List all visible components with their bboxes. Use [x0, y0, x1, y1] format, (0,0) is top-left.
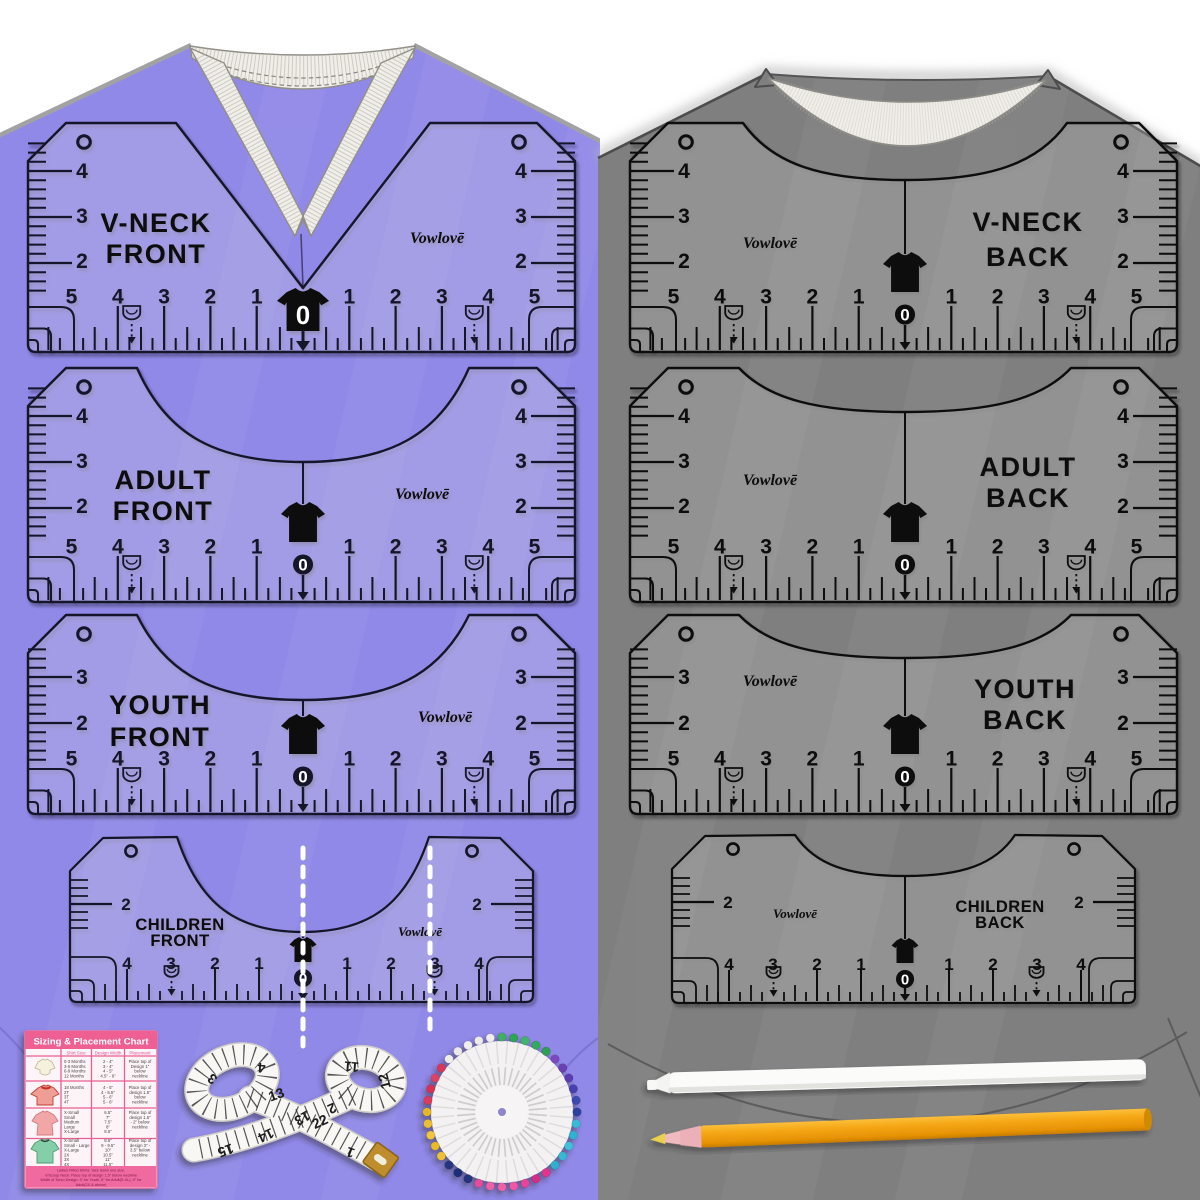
- svg-text:2: 2: [678, 250, 690, 273]
- svg-text:2: 2: [1117, 250, 1129, 273]
- svg-text:3: 3: [76, 450, 88, 473]
- svg-text:2: 2: [1074, 893, 1083, 912]
- svg-text:1: 1: [251, 748, 263, 771]
- svg-text:2: 2: [807, 748, 819, 771]
- svg-text:FRONT: FRONT: [106, 239, 206, 269]
- svg-text:3: 3: [158, 286, 170, 309]
- svg-text:X-Large: X-Large: [64, 1129, 80, 1134]
- svg-text:2: 2: [515, 495, 527, 518]
- svg-text:4: 4: [515, 405, 527, 428]
- svg-text:2: 2: [121, 895, 130, 914]
- svg-text:Vowlovē: Vowlovē: [773, 906, 817, 921]
- svg-text:1: 1: [343, 286, 355, 309]
- svg-text:3: 3: [678, 450, 690, 473]
- svg-text:4: 4: [1117, 405, 1129, 428]
- svg-text:3: 3: [1117, 666, 1129, 689]
- svg-text:3: 3: [760, 536, 772, 559]
- svg-text:4: 4: [76, 160, 88, 183]
- svg-text:5: 5: [66, 748, 78, 771]
- svg-text:3: 3: [760, 286, 772, 309]
- svg-text:1: 1: [945, 286, 957, 309]
- svg-text:0: 0: [900, 768, 909, 787]
- svg-text:1: 1: [853, 536, 865, 559]
- svg-text:YOUTH: YOUTH: [109, 690, 211, 720]
- svg-text:4: 4: [724, 955, 734, 974]
- svg-text:2: 2: [807, 536, 819, 559]
- svg-text:0: 0: [900, 556, 909, 575]
- svg-text:2: 2: [1117, 712, 1129, 735]
- svg-text:4.5" - 6": 4.5" - 6": [100, 1073, 116, 1078]
- svg-text:0: 0: [296, 300, 310, 330]
- svg-text:2: 2: [205, 536, 217, 559]
- svg-text:4T: 4T: [64, 1099, 69, 1104]
- svg-text:5: 5: [66, 536, 78, 559]
- svg-text:YOUTH: YOUTH: [974, 674, 1076, 704]
- svg-text:BACK: BACK: [986, 483, 1070, 513]
- svg-text:2: 2: [390, 748, 402, 771]
- svg-text:Vowlovē: Vowlovē: [410, 230, 465, 247]
- svg-text:2: 2: [992, 286, 1004, 309]
- svg-text:2: 2: [472, 895, 481, 914]
- svg-text:3: 3: [515, 666, 527, 689]
- svg-text:5: 5: [1131, 536, 1143, 559]
- svg-text:3: 3: [158, 536, 170, 559]
- svg-text:1: 1: [342, 954, 351, 973]
- svg-text:1: 1: [254, 954, 263, 973]
- svg-text:5: 5: [668, 748, 680, 771]
- svg-text:Ladies Fitted Shirts: Size dow: Ladies Fitted Shirts: Size down one size…: [57, 1169, 125, 1173]
- svg-text:3: 3: [1038, 536, 1050, 559]
- svg-text:0: 0: [901, 972, 909, 989]
- svg-text:neckline: neckline: [132, 1099, 148, 1104]
- svg-text:5: 5: [529, 536, 541, 559]
- svg-text:Vowlovē: Vowlovē: [743, 472, 798, 489]
- svg-text:3: 3: [1038, 286, 1050, 309]
- svg-text:V/Scoop Neck: Place top of des: V/Scoop Neck: Place top of design 1.5" b…: [45, 1173, 137, 1177]
- svg-text:2: 2: [678, 712, 690, 735]
- svg-text:4: 4: [474, 954, 484, 973]
- svg-text:3: 3: [76, 205, 88, 228]
- svg-text:4: 4: [122, 954, 132, 973]
- svg-text:4: 4: [678, 160, 690, 183]
- svg-text:FRONT: FRONT: [113, 496, 213, 526]
- svg-text:2: 2: [678, 495, 690, 518]
- svg-text:3: 3: [515, 205, 527, 228]
- svg-text:4: 4: [112, 286, 124, 309]
- svg-text:FRONT: FRONT: [110, 722, 210, 752]
- svg-text:4: 4: [678, 405, 690, 428]
- svg-text:5: 5: [668, 536, 680, 559]
- svg-text:1: 1: [343, 536, 355, 559]
- svg-text:2: 2: [210, 954, 219, 973]
- svg-text:1: 1: [945, 536, 957, 559]
- svg-text:FRONT: FRONT: [150, 932, 209, 950]
- svg-text:5: 5: [1131, 286, 1143, 309]
- svg-text:4: 4: [1084, 748, 1096, 771]
- svg-text:Vowlovē: Vowlovē: [743, 235, 798, 252]
- svg-text:2: 2: [76, 712, 88, 735]
- svg-text:Design Width: Design Width: [95, 1051, 122, 1056]
- svg-text:3: 3: [1117, 205, 1129, 228]
- svg-text:0: 0: [298, 768, 307, 787]
- svg-text:2: 2: [386, 954, 395, 973]
- svg-text:4: 4: [714, 536, 726, 559]
- svg-text:1: 1: [853, 748, 865, 771]
- svg-text:Vowlovē: Vowlovē: [418, 709, 473, 726]
- svg-text:Vowlovē: Vowlovē: [743, 673, 798, 690]
- svg-text:4: 4: [1084, 536, 1096, 559]
- svg-text:neckline: neckline: [132, 1124, 148, 1129]
- svg-text:4: 4: [714, 286, 726, 309]
- svg-text:Vowlovē: Vowlovē: [398, 924, 442, 939]
- svg-text:4: 4: [257, 1060, 266, 1077]
- svg-text:BACK: BACK: [983, 705, 1067, 735]
- svg-text:1: 1: [944, 955, 953, 974]
- svg-text:3: 3: [436, 536, 448, 559]
- svg-text:1: 1: [251, 536, 263, 559]
- svg-text:1: 1: [945, 748, 957, 771]
- svg-text:1: 1: [856, 955, 865, 974]
- svg-text:Width of Torso Design: 3" for: Width of Torso Design: 3" for Youth, 6" …: [40, 1178, 142, 1182]
- svg-text:Vowlovē: Vowlovē: [395, 486, 450, 503]
- svg-text:neckline: neckline: [132, 1152, 148, 1157]
- svg-text:1: 1: [251, 286, 263, 309]
- svg-text:3: 3: [678, 205, 690, 228]
- svg-text:3: 3: [515, 450, 527, 473]
- svg-text:8.5": 8.5": [104, 1129, 112, 1134]
- svg-text:2: 2: [992, 748, 1004, 771]
- svg-text:5: 5: [529, 748, 541, 771]
- svg-text:5: 5: [1131, 748, 1143, 771]
- svg-text:4: 4: [1076, 955, 1086, 974]
- svg-text:2: 2: [515, 712, 527, 735]
- svg-text:2: 2: [992, 536, 1004, 559]
- svg-text:2: 2: [807, 286, 819, 309]
- svg-text:Shirt Size: Shirt Size: [66, 1051, 86, 1056]
- svg-text:12 Months: 12 Months: [64, 1073, 84, 1078]
- svg-text:3: 3: [436, 748, 448, 771]
- svg-text:4: 4: [1117, 160, 1129, 183]
- svg-text:0: 0: [900, 306, 909, 325]
- svg-text:3: 3: [1038, 748, 1050, 771]
- svg-text:Sizing & Placement Chart: Sizing & Placement Chart: [33, 1037, 149, 1048]
- svg-text:4: 4: [482, 536, 494, 559]
- svg-text:BACK: BACK: [975, 914, 1025, 932]
- svg-text:11: 11: [343, 1058, 359, 1075]
- svg-text:4: 4: [482, 286, 494, 309]
- svg-text:4: 4: [112, 536, 124, 559]
- svg-text:Adult(2X & above): Adult(2X & above): [76, 1183, 108, 1187]
- svg-text:Placement: Placement: [129, 1051, 151, 1056]
- svg-text:2: 2: [76, 495, 88, 518]
- svg-text:4: 4: [714, 748, 726, 771]
- svg-text:5: 5: [668, 286, 680, 309]
- svg-text:4: 4: [482, 748, 494, 771]
- svg-text:4: 4: [515, 160, 527, 183]
- svg-text:5: 5: [66, 286, 78, 309]
- svg-text:ADULT: ADULT: [980, 452, 1077, 482]
- svg-text:V-NECK: V-NECK: [972, 207, 1083, 237]
- svg-text:neckline: neckline: [132, 1073, 148, 1078]
- svg-text:5: 5: [529, 286, 541, 309]
- svg-text:2: 2: [812, 955, 821, 974]
- svg-text:2: 2: [76, 250, 88, 273]
- svg-text:2: 2: [390, 536, 402, 559]
- svg-text:3: 3: [678, 666, 690, 689]
- svg-text:3: 3: [760, 748, 772, 771]
- svg-text:2: 2: [723, 893, 732, 912]
- svg-text:2: 2: [1117, 495, 1129, 518]
- svg-text:2: 2: [988, 955, 997, 974]
- svg-text:BACK: BACK: [986, 242, 1070, 272]
- svg-text:2: 2: [205, 286, 217, 309]
- svg-text:2: 2: [515, 250, 527, 273]
- svg-text:4: 4: [76, 405, 88, 428]
- svg-text:0: 0: [298, 556, 307, 575]
- svg-text:V-NECK: V-NECK: [100, 208, 211, 238]
- svg-text:4: 4: [1084, 286, 1096, 309]
- svg-text:3: 3: [436, 286, 448, 309]
- svg-text:1: 1: [853, 286, 865, 309]
- svg-text:3: 3: [76, 666, 88, 689]
- svg-text:ADULT: ADULT: [115, 465, 212, 495]
- svg-text:3: 3: [1117, 450, 1129, 473]
- svg-text:5 - 6": 5 - 6": [103, 1099, 114, 1104]
- svg-text:2: 2: [390, 286, 402, 309]
- svg-text:1: 1: [343, 748, 355, 771]
